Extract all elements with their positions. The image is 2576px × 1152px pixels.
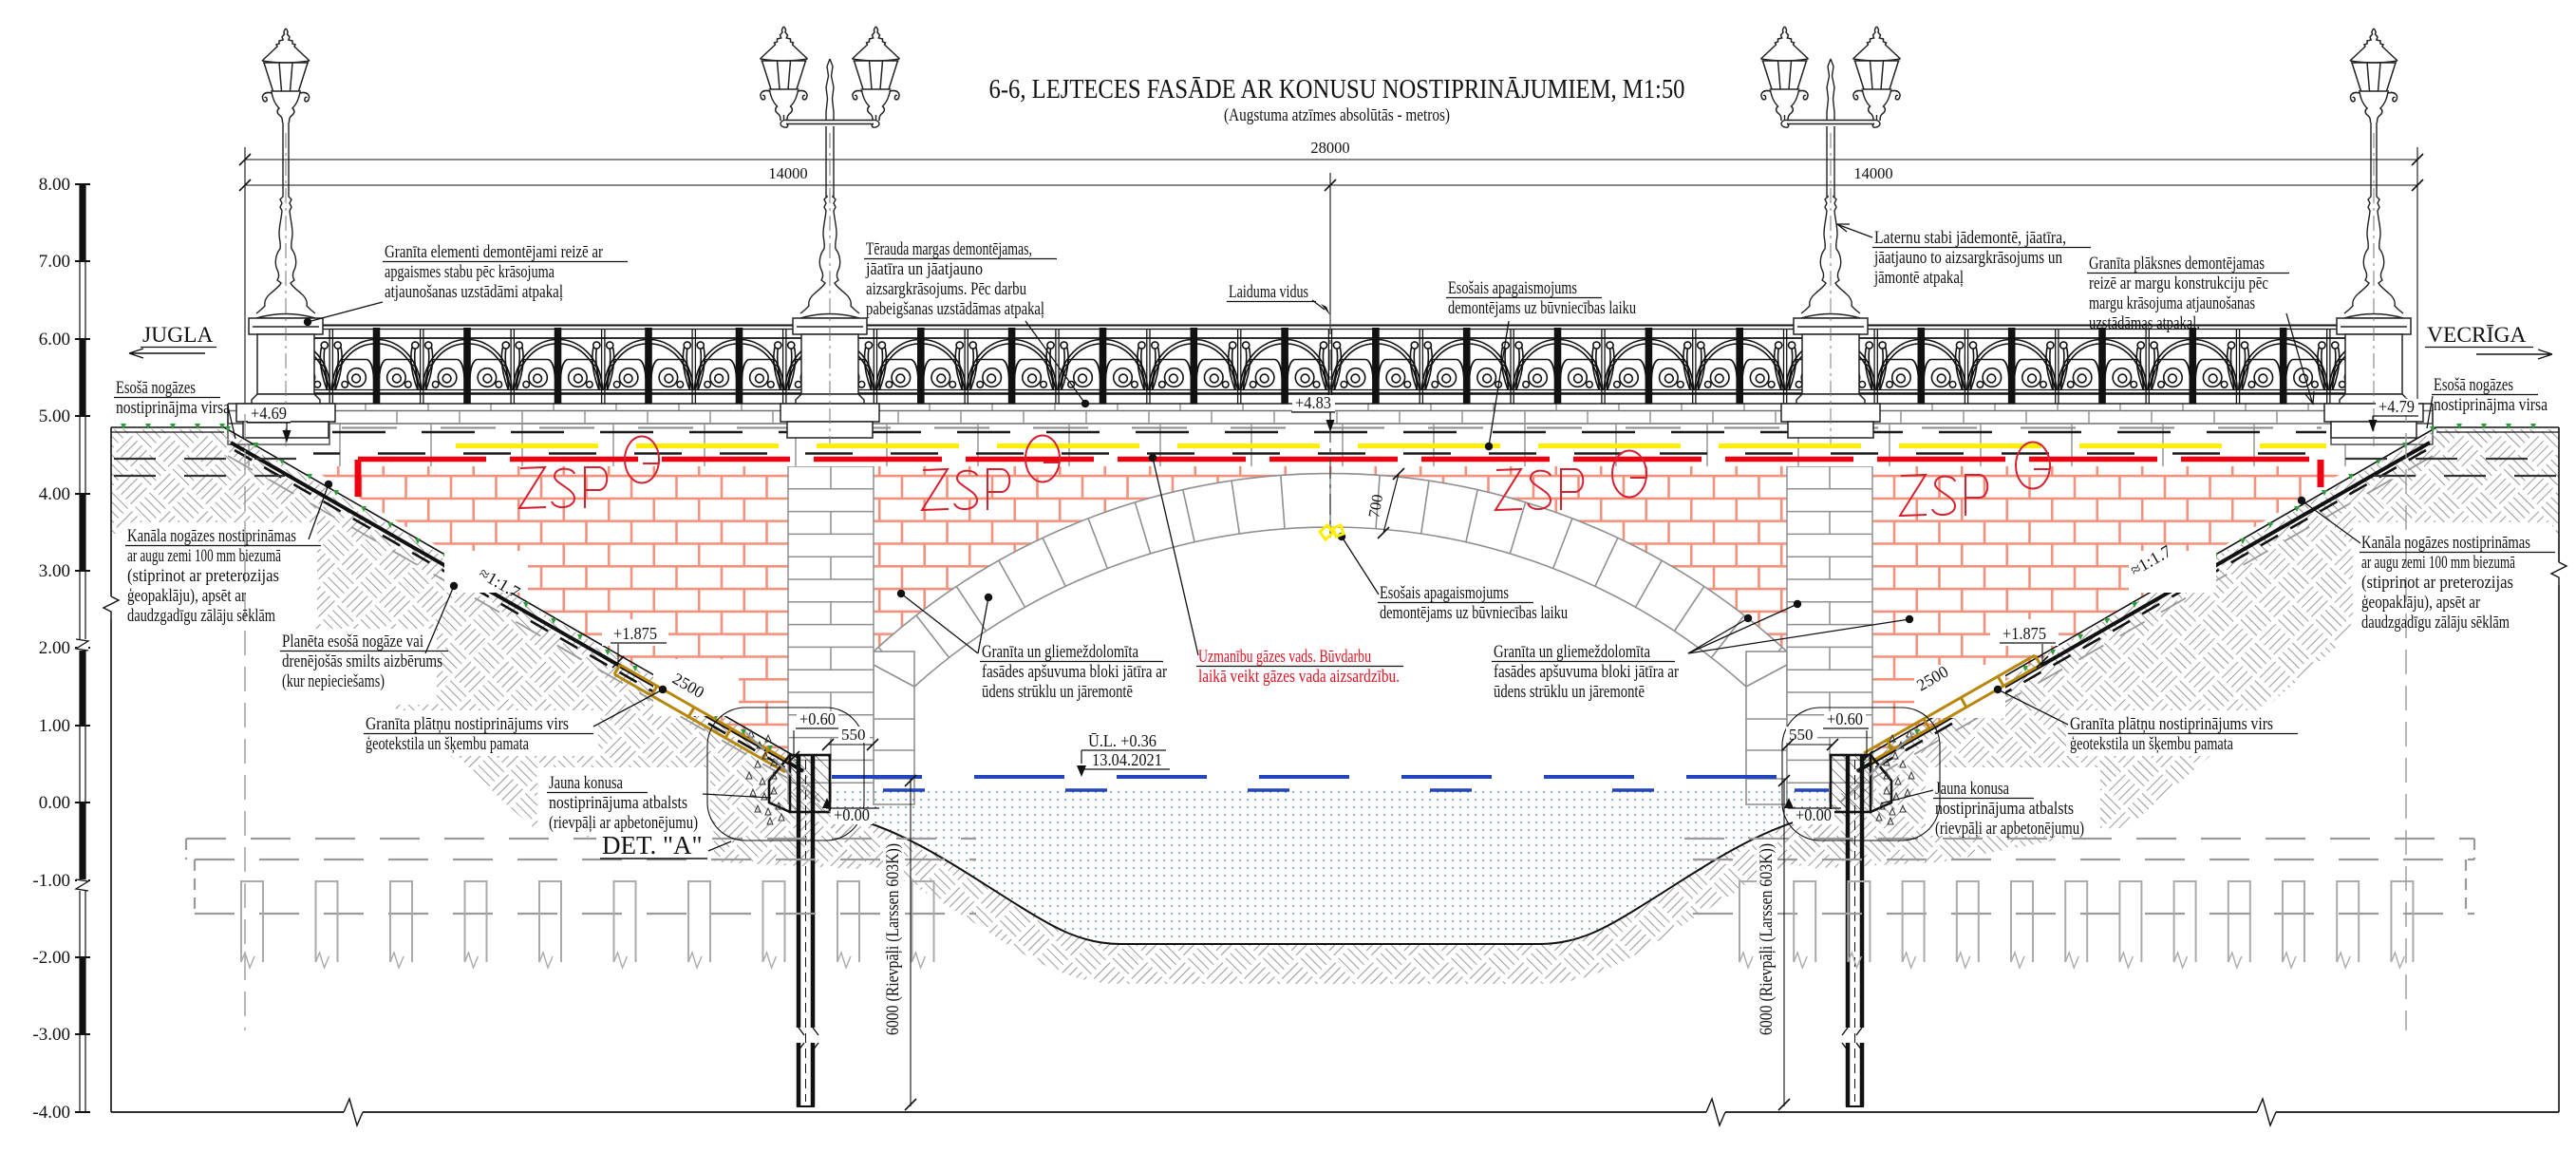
svg-text:-2.00: -2.00 — [32, 948, 70, 968]
svg-text:Esošais apagaismojums: Esošais apagaismojums — [1448, 278, 1577, 298]
svg-text:aizsargkrāsojums. Pēc darbu: aizsargkrāsojums. Pēc darbu — [866, 279, 1026, 299]
svg-text:margu krāsojuma atjaunošanas: margu krāsojuma atjaunošanas — [2089, 293, 2255, 313]
svg-text:Jauna konusa: Jauna konusa — [549, 773, 623, 793]
svg-text:Uzmanību gāzes vads. Būvdarbu: Uzmanību gāzes vads. Būvdarbu — [1198, 647, 1371, 667]
svg-text:nostiprinājuma atbalsts: nostiprinājuma atbalsts — [1935, 799, 2074, 819]
svg-text:ģeopaklāju), apsēt ar: ģeopaklāju), apsēt ar — [127, 586, 247, 606]
svg-text:-4.00: -4.00 — [32, 1103, 70, 1123]
svg-text:+1.875: +1.875 — [613, 624, 657, 643]
svg-text:JUGLA: JUGLA — [142, 323, 213, 348]
svg-text:+4.79: +4.79 — [2379, 397, 2415, 416]
svg-text:reizē ar margu konstrukciju pē: reizē ar margu konstrukciju pēc — [2089, 274, 2268, 293]
svg-text:28000: 28000 — [1310, 139, 1349, 157]
svg-text:demontējams uz būvniecības lai: demontējams uz būvniecības laiku — [1380, 603, 1568, 623]
svg-text:Planēta esošā nogāze vai: Planēta esošā nogāze vai — [282, 632, 423, 652]
svg-text:DET. "A": DET. "A" — [602, 831, 703, 859]
svg-text:Granīta plātņu nostiprinājums: Granīta plātņu nostiprinājums virs — [366, 714, 569, 734]
svg-text:Granīta plāksnes demontējamas: Granīta plāksnes demontējamas — [2089, 254, 2265, 274]
svg-text:6000 (Rievpāļi (Larssen 603: 6000 (Rievpāļi (Larssen 603K)) — [884, 843, 903, 1035]
svg-text:+4.83: +4.83 — [1295, 393, 1331, 412]
svg-text:nostiprinājuma atbalsts: nostiprinājuma atbalsts — [549, 793, 687, 813]
svg-text:Esošā nogāzes: Esošā nogāzes — [116, 378, 196, 398]
svg-text:ūdens strūklu un jāremontē: ūdens strūklu un jāremontē — [1494, 682, 1645, 702]
svg-text:13.04.2021: 13.04.2021 — [1092, 750, 1162, 769]
svg-text:pabeigšanas uzstādāmas atpakaļ: pabeigšanas uzstādāmas atpakaļ — [866, 299, 1044, 319]
svg-text:nostiprinājma virsa: nostiprinājma virsa — [116, 398, 230, 418]
svg-text:ar augu zemi 100 mm biezumā: ar augu zemi 100 mm biezumā — [2361, 553, 2515, 573]
svg-text:-3.00: -3.00 — [32, 1025, 70, 1045]
svg-text:+1.875: +1.875 — [2003, 624, 2046, 643]
svg-text:+4.69: +4.69 — [251, 404, 287, 423]
svg-text:(rievpāļi ar apbetonējumu): (rievpāļi ar apbetonējumu) — [1935, 819, 2084, 839]
svg-text:6-6, LEJTECES FASĀDE AR KONUSU: 6-6, LEJTECES FASĀDE AR KONUSU NOSTIPRIN… — [989, 74, 1685, 104]
svg-text:Ū.L. +0.36: Ū.L. +0.36 — [1088, 731, 1156, 750]
svg-text:uzstādāmas atpakaļ.: uzstādāmas atpakaļ. — [2089, 313, 2200, 333]
svg-text:(stiprinot ar preterozijas: (stiprinot ar preterozijas — [2361, 573, 2513, 593]
svg-text:Kanāla nogāzes nostiprināmas: Kanāla nogāzes nostiprināmas — [127, 526, 296, 546]
svg-text:(kur nepieciešams): (kur nepieciešams) — [282, 671, 385, 691]
svg-text:(rievpāļi ar apbetonējumu): (rievpāļi ar apbetonējumu) — [549, 813, 698, 833]
svg-text:14000: 14000 — [768, 164, 807, 182]
svg-text:3.00: 3.00 — [39, 561, 70, 581]
svg-text:5.00: 5.00 — [39, 406, 70, 426]
svg-text:ģeotekstila un šķembu pamata: ģeotekstila un šķembu pamata — [2070, 734, 2233, 754]
svg-text:VECRĪGA: VECRĪGA — [2427, 323, 2526, 348]
svg-text:fasādes apšuvuma bloki jātīra: fasādes apšuvuma bloki jātīra ar — [982, 662, 1168, 682]
svg-text:fasādes apšuvuma bloki jātīra: fasādes apšuvuma bloki jātīra ar — [1494, 662, 1680, 682]
svg-text:7.00: 7.00 — [39, 252, 70, 272]
svg-text:+0.60: +0.60 — [799, 709, 836, 728]
svg-text:4.00: 4.00 — [39, 484, 70, 504]
svg-text:ģeopaklāju), apsēt ar: ģeopaklāju), apsēt ar — [2361, 593, 2481, 613]
svg-text:Granīta un gliemeždolomīta: Granīta un gliemeždolomīta — [982, 642, 1138, 662]
svg-text:Laternu stabi jādemontē, jāatī: Laternu stabi jādemontē, jāatīra, — [1874, 228, 2066, 248]
svg-text:Esošā nogāzes: Esošā nogāzes — [2434, 375, 2513, 395]
svg-text:(Augstuma atzīmes absolūtās -: (Augstuma atzīmes absolūtās - metros) — [1224, 105, 1450, 125]
svg-text:jāatīra un jāatjauno: jāatīra un jāatjauno — [865, 259, 983, 279]
svg-text:jāatjauno to aizsargkrāsojums: jāatjauno to aizsargkrāsojums un — [1873, 248, 2062, 268]
svg-text:apgaismes stabu pēc krāsojuma: apgaismes stabu pēc krāsojuma — [385, 262, 555, 282]
svg-text:jāmontē atpakaļ: jāmontē atpakaļ — [1873, 268, 1964, 288]
svg-text:Laiduma vidus: Laiduma vidus — [1229, 282, 1308, 302]
svg-text:Kanāla nogāzes nostiprināmas: Kanāla nogāzes nostiprināmas — [2361, 533, 2530, 553]
svg-text:daudzgadīgu zālāju sēklām: daudzgadīgu zālāju sēklām — [127, 606, 275, 626]
svg-text:Granīta plātņu nostiprinājums: Granīta plātņu nostiprinājums virs — [2070, 714, 2273, 734]
svg-text:0.00: 0.00 — [39, 793, 70, 813]
svg-text:laikā veikt gāzes vada aizsard: laikā veikt gāzes vada aizsardzību. — [1198, 667, 1400, 687]
svg-text:ģeotekstila un šķembu pamata: ģeotekstila un šķembu pamata — [366, 734, 529, 754]
svg-text:8.00: 8.00 — [39, 175, 70, 195]
svg-text:ūdens strūklu un jāremontē: ūdens strūklu un jāremontē — [982, 682, 1133, 702]
svg-text:ar augu zemi 100 mm biezumā: ar augu zemi 100 mm biezumā — [127, 546, 281, 566]
svg-text:Granīta un gliemeždolomīta: Granīta un gliemeždolomīta — [1494, 642, 1650, 662]
svg-text:6000 (Rievpāļi (Larssen 603: 6000 (Rievpāļi (Larssen 603K)) — [1758, 843, 1777, 1035]
svg-text:daudzgadīgu zālāju sēklām: daudzgadīgu zālāju sēklām — [2361, 613, 2510, 633]
svg-text:14000: 14000 — [1853, 164, 1892, 182]
svg-text:Esošais apagaismojums: Esošais apagaismojums — [1380, 583, 1509, 603]
svg-text:nostiprinājma virsa: nostiprinājma virsa — [2434, 395, 2548, 415]
svg-text:Jauna konusa: Jauna konusa — [1935, 779, 2009, 799]
svg-text:+0.60: +0.60 — [1827, 709, 1863, 728]
svg-text:demontējams uz būvniecības lai: demontējams uz būvniecības laiku — [1448, 298, 1636, 318]
svg-text:Granīta elementi demontējami r: Granīta elementi demontējami reizē ar — [385, 242, 604, 262]
svg-text:drenējošās smilts aizbērums: drenējošās smilts aizbērums — [282, 652, 442, 671]
svg-text:(stiprinot ar preterozijas: (stiprinot ar preterozijas — [127, 566, 279, 586]
svg-text:6.00: 6.00 — [39, 330, 70, 349]
svg-text:atjaunošanas uzstādāmi atpakaļ: atjaunošanas uzstādāmi atpakaļ — [385, 282, 563, 302]
svg-text:550: 550 — [841, 726, 866, 744]
svg-text:1.00: 1.00 — [39, 716, 70, 736]
svg-text:Tērauda margas demontējamas,: Tērauda margas demontējamas, — [866, 239, 1032, 259]
svg-text:-1.00: -1.00 — [32, 871, 70, 891]
svg-text:2.00: 2.00 — [39, 638, 70, 658]
